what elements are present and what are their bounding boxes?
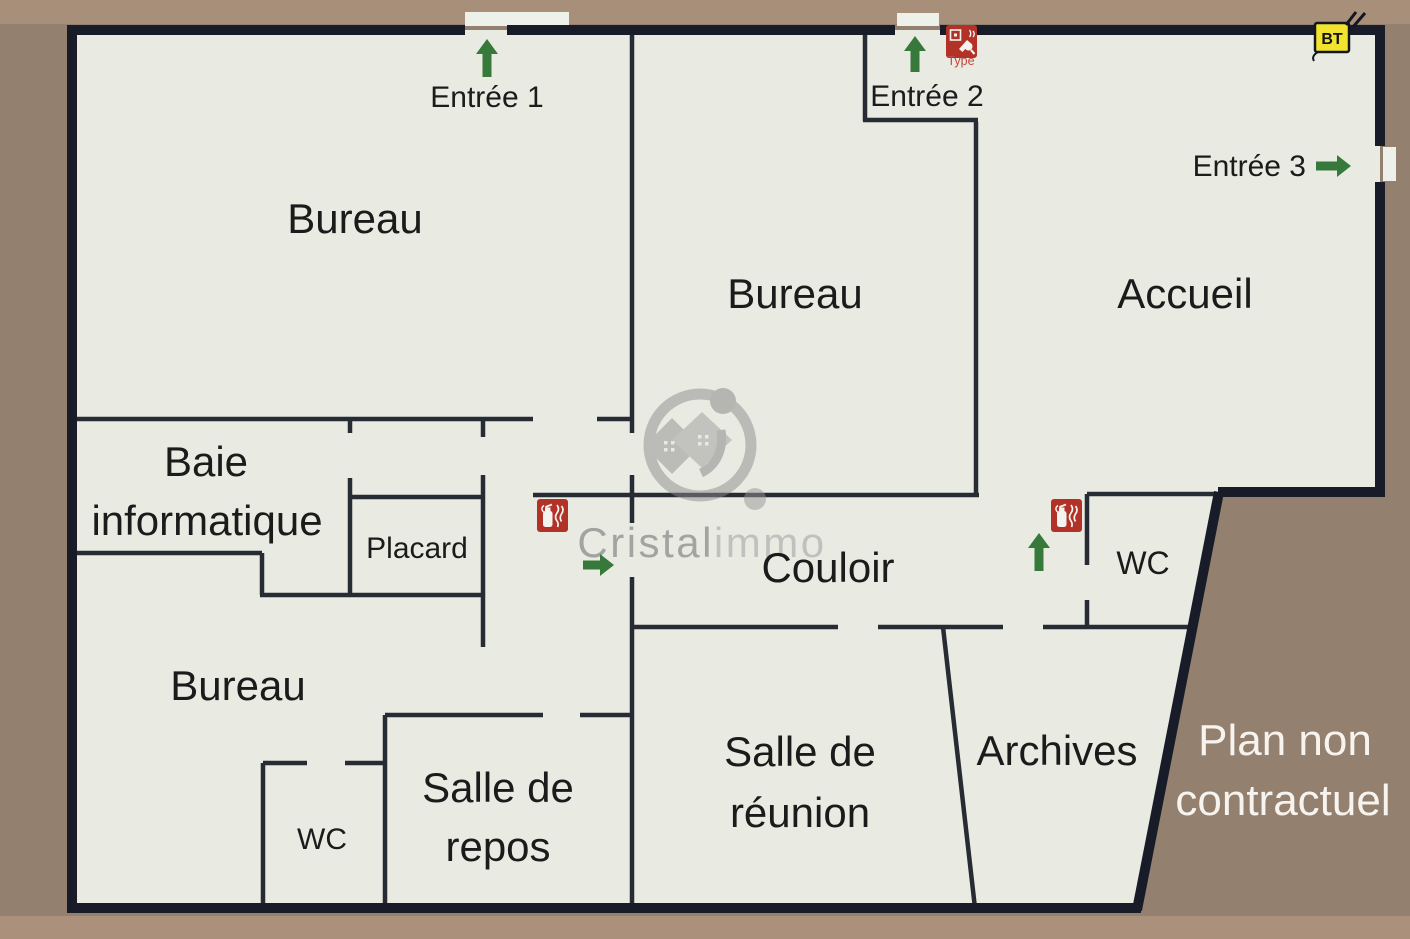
background-bottom-band [0,916,1410,939]
room-label-accueil: Accueil [1117,270,1252,317]
room-label-salle-de-repos-line1: Salle de [422,764,574,811]
room-label-salle-de-reunion-line2: réunion [730,789,870,836]
entrance2-label: Entrée 2 [870,80,983,113]
entrance3-label: Entrée 3 [1193,150,1306,183]
room-label-baie-informatique-line2: informatique [91,497,322,544]
fire-extinguisher-icon [1051,499,1082,532]
floor-plan-image: Cristalimmo Bureau Bureau Accueil Baie i… [0,0,1410,939]
fire-alarm-call-point-caption: Type [947,54,974,68]
watermark-dot [744,488,766,510]
fire-extinguisher-icon [537,499,568,532]
bt-electrical-panel-label: BT [1321,31,1343,48]
entrance1-exterior-mark [465,12,569,26]
room-label-placard: Placard [366,532,468,565]
room-label-couloir: Couloir [761,544,894,591]
room-label-wc-right: WC [1116,545,1169,581]
room-label-archives: Archives [976,727,1137,774]
room-label-wc-bottom-left: WC [297,823,347,856]
watermark-person-head [710,388,736,414]
disclaimer-line2: contractuel [1175,776,1390,825]
entrance1-label: Entrée 1 [430,81,543,114]
room-label-baie-informatique-line1: Baie [164,438,248,485]
room-label-salle-de-reunion-line1: Salle de [724,728,876,775]
room-label-salle-de-repos-line2: repos [445,823,550,870]
room-label-bureau-top-left: Bureau [287,195,422,242]
room-label-bureau-middle: Bureau [727,270,862,317]
watermark-brand-part1: Cristal [577,519,714,566]
background-top-band [0,0,1410,24]
room-label-bureau-bottom-left: Bureau [170,662,305,709]
entrance2-exterior-mark [897,13,939,26]
disclaimer-line1: Plan non [1198,716,1372,765]
entrance3-exterior-mark [1383,147,1396,181]
